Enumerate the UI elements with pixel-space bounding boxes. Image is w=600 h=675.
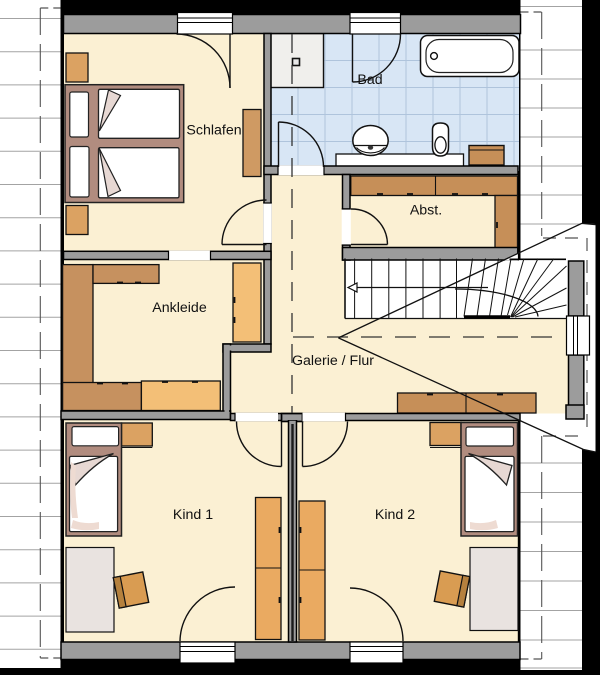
svg-text:Galerie / Flur: Galerie / Flur (292, 353, 374, 369)
svg-text:Ankleide: Ankleide (152, 300, 207, 316)
svg-text:Kind 2: Kind 2 (375, 507, 415, 523)
svg-text:Schlafen: Schlafen (186, 123, 241, 139)
svg-text:Kind 1: Kind 1 (173, 507, 213, 523)
svg-text:Bad: Bad (357, 72, 382, 88)
svg-text:Abst.: Abst. (410, 203, 442, 219)
